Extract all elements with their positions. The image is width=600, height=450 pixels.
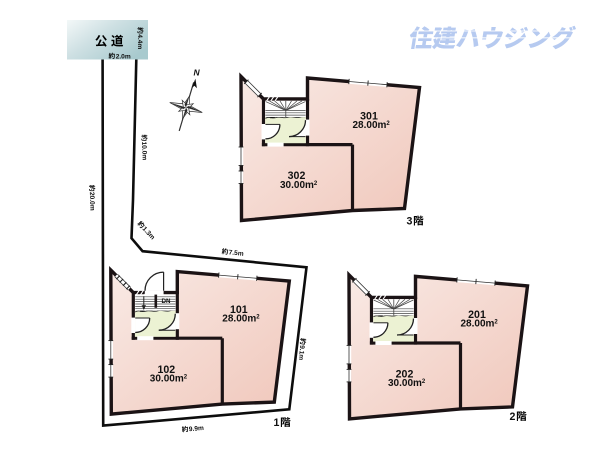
svg-text:2: 2 bbox=[510, 411, 516, 423]
svg-text:28.00m2: 28.00m2 bbox=[353, 120, 391, 131]
svg-text:9.9m: 9.9m bbox=[189, 425, 205, 433]
svg-text:N: N bbox=[194, 68, 201, 78]
svg-text:2.0m: 2.0m bbox=[116, 53, 131, 60]
svg-text:4.4m: 4.4m bbox=[136, 34, 143, 49]
svg-text:20.0m: 20.0m bbox=[88, 192, 96, 211]
svg-text:28.00m2: 28.00m2 bbox=[222, 314, 260, 325]
svg-text:28.00m2: 28.00m2 bbox=[461, 318, 499, 329]
svg-text:30.00m2: 30.00m2 bbox=[150, 373, 188, 384]
svg-text:30.00m2: 30.00m2 bbox=[388, 378, 426, 389]
svg-text:1.3m: 1.3m bbox=[141, 226, 156, 242]
svg-text:30.00m2: 30.00m2 bbox=[280, 180, 318, 191]
svg-text:1: 1 bbox=[274, 417, 280, 429]
svg-text:3: 3 bbox=[407, 216, 413, 228]
svg-text:10.0m: 10.0m bbox=[140, 141, 148, 160]
svg-text:7.5m: 7.5m bbox=[228, 249, 244, 258]
svg-text:9.1m: 9.1m bbox=[297, 345, 305, 361]
